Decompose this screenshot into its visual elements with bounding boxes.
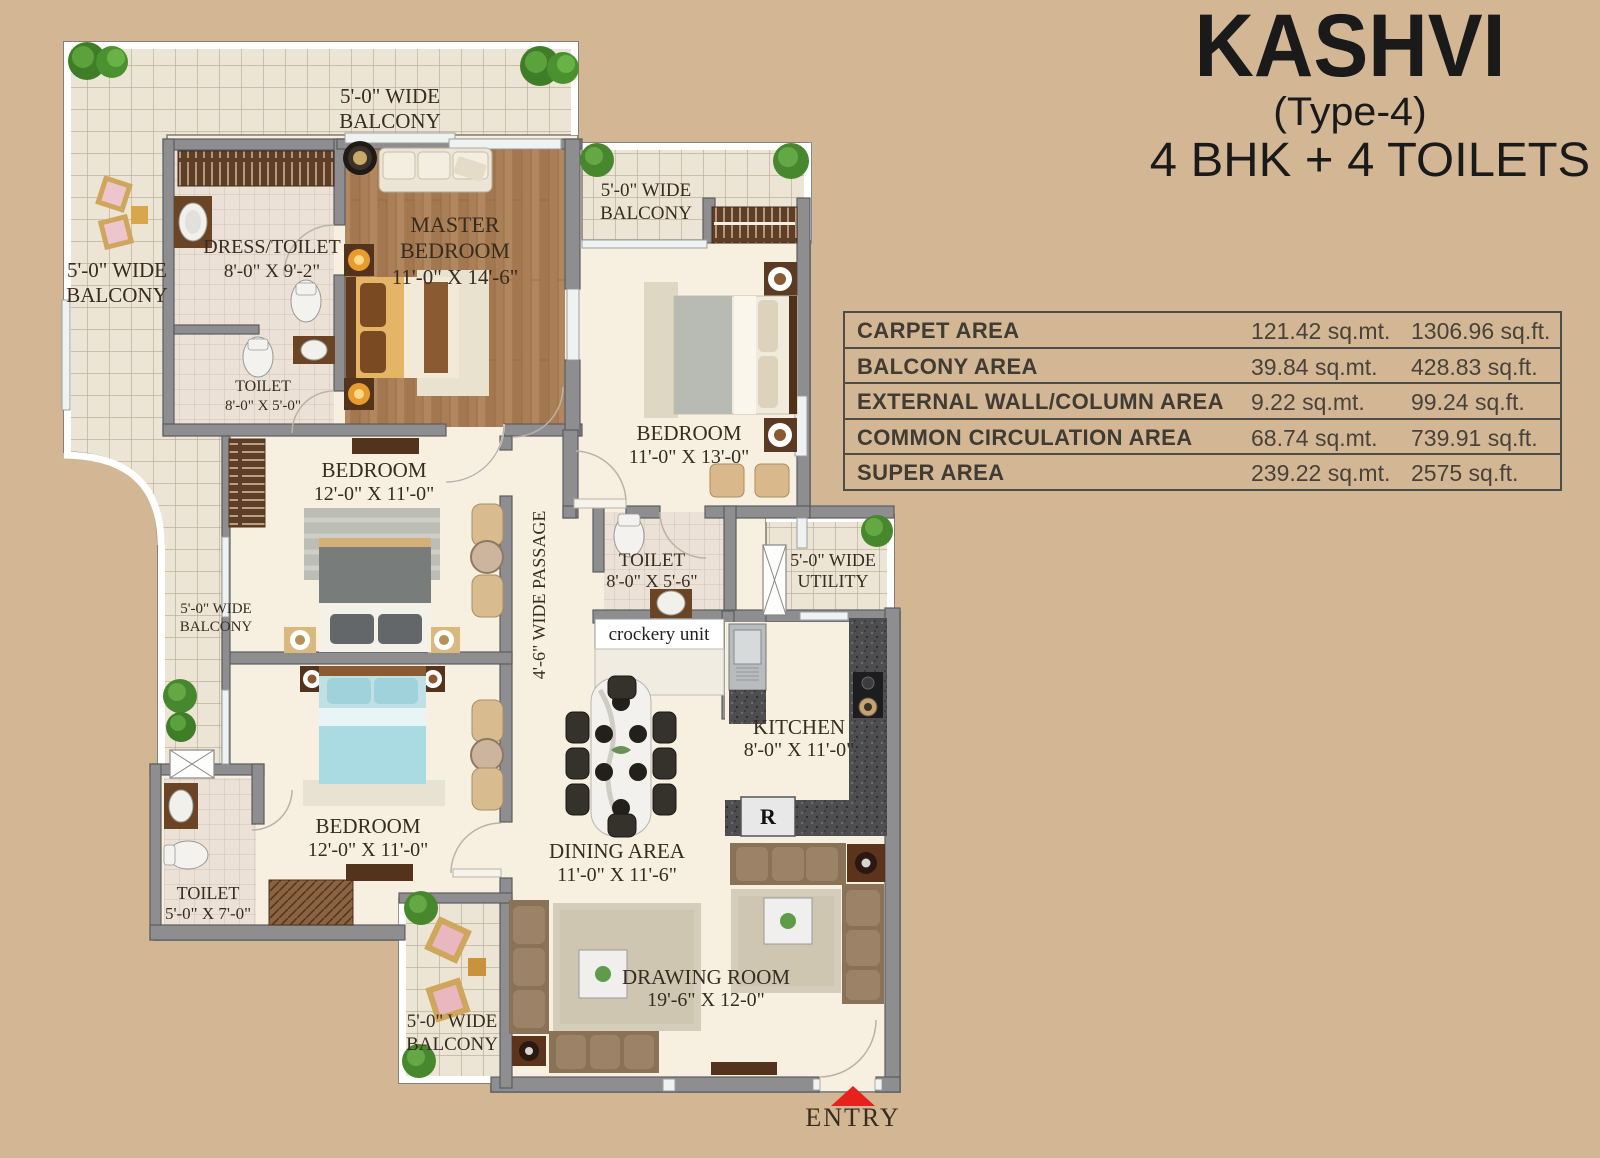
svg-text:5'-0" WIDE: 5'-0" WIDE <box>407 1011 498 1032</box>
svg-text:BALCONY: BALCONY <box>339 109 441 133</box>
svg-text:ENTRY: ENTRY <box>805 1103 900 1132</box>
svg-text:TOILET: TOILET <box>177 883 240 903</box>
svg-text:DINING AREA: DINING AREA <box>549 839 686 863</box>
svg-text:12'-0" X 11'-0": 12'-0" X 11'-0" <box>314 483 435 505</box>
svg-text:TOILET: TOILET <box>235 378 291 395</box>
svg-text:BALCONY: BALCONY <box>66 283 168 307</box>
svg-text:BEDROOM: BEDROOM <box>321 458 426 482</box>
svg-text:8'-0" X 9'-2": 8'-0" X 9'-2" <box>224 261 320 282</box>
svg-text:DRAWING ROOM: DRAWING ROOM <box>622 965 790 989</box>
svg-text:BALCONY: BALCONY <box>406 1034 498 1055</box>
svg-text:5'-0" WIDE: 5'-0" WIDE <box>67 258 167 282</box>
svg-text:5'-0" WIDE: 5'-0" WIDE <box>340 84 440 108</box>
svg-text:19'-6" X 12-0": 19'-6" X 12-0" <box>647 989 765 1011</box>
svg-text:5'-0" WIDE: 5'-0" WIDE <box>180 601 251 617</box>
svg-text:5'-0" WIDE: 5'-0" WIDE <box>790 550 876 570</box>
svg-text:TOILET: TOILET <box>619 550 686 571</box>
svg-text:8'-0" X 5'-6": 8'-0" X 5'-6" <box>606 571 697 591</box>
svg-text:4'-6" WIDE PASSAGE: 4'-6" WIDE PASSAGE <box>529 511 549 680</box>
svg-text:BEDROOM: BEDROOM <box>400 238 510 263</box>
svg-text:5'-0" WIDE: 5'-0" WIDE <box>601 180 692 201</box>
svg-text:8'-0" X 11'-0": 8'-0" X 11'-0" <box>744 739 855 761</box>
svg-text:KITCHEN: KITCHEN <box>753 715 845 739</box>
svg-text:BEDROOM: BEDROOM <box>315 814 420 838</box>
svg-text:MASTER: MASTER <box>410 212 500 237</box>
svg-text:5'-0" X 7'-0": 5'-0" X 7'-0" <box>165 904 251 923</box>
svg-text:DRESS/TOILET: DRESS/TOILET <box>203 236 340 258</box>
svg-text:8'-0" X 5'-0": 8'-0" X 5'-0" <box>225 398 301 414</box>
svg-text:11'-0" X 14'-6": 11'-0" X 14'-6" <box>392 265 519 289</box>
svg-text:12'-0" X 11'-0": 12'-0" X 11'-0" <box>308 839 429 861</box>
svg-text:BALCONY: BALCONY <box>600 203 692 224</box>
svg-text:11'-0" X 11'-6": 11'-0" X 11'-6" <box>557 864 677 886</box>
svg-text:R: R <box>760 804 777 829</box>
svg-text:BEDROOM: BEDROOM <box>636 421 741 445</box>
svg-text:BALCONY: BALCONY <box>180 619 253 635</box>
svg-text:crockery unit: crockery unit <box>609 624 710 645</box>
svg-text:11'-0" X 13'-0": 11'-0" X 13'-0" <box>629 446 750 468</box>
svg-text:UTILITY: UTILITY <box>798 571 869 591</box>
